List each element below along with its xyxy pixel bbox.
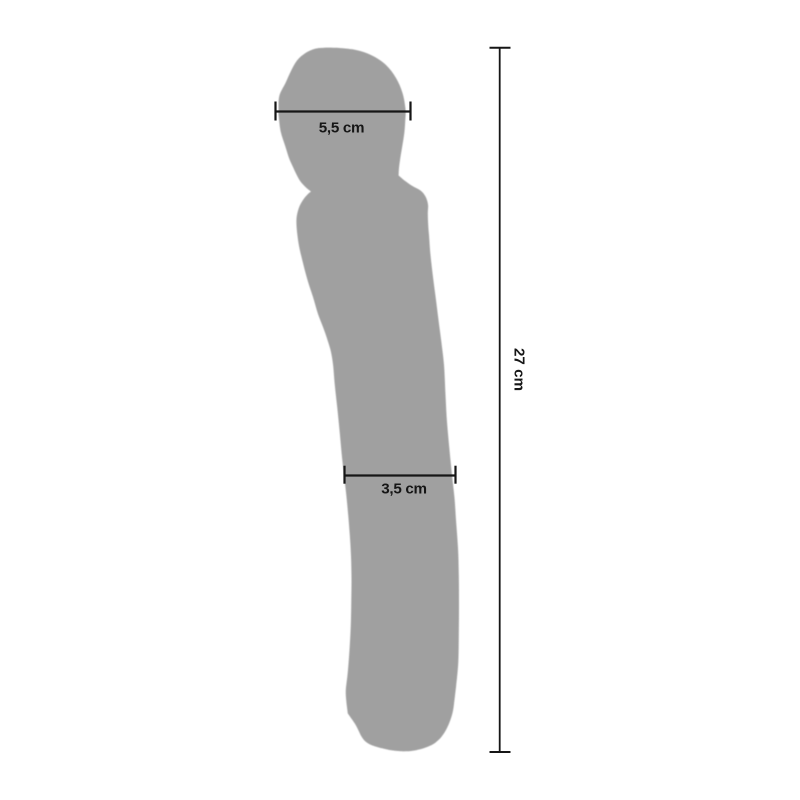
svg-text:5,5 cm: 5,5 cm: [319, 120, 364, 137]
svg-text:3,5 cm: 3,5 cm: [381, 481, 426, 498]
svg-text:27 cm: 27 cm: [511, 348, 528, 391]
